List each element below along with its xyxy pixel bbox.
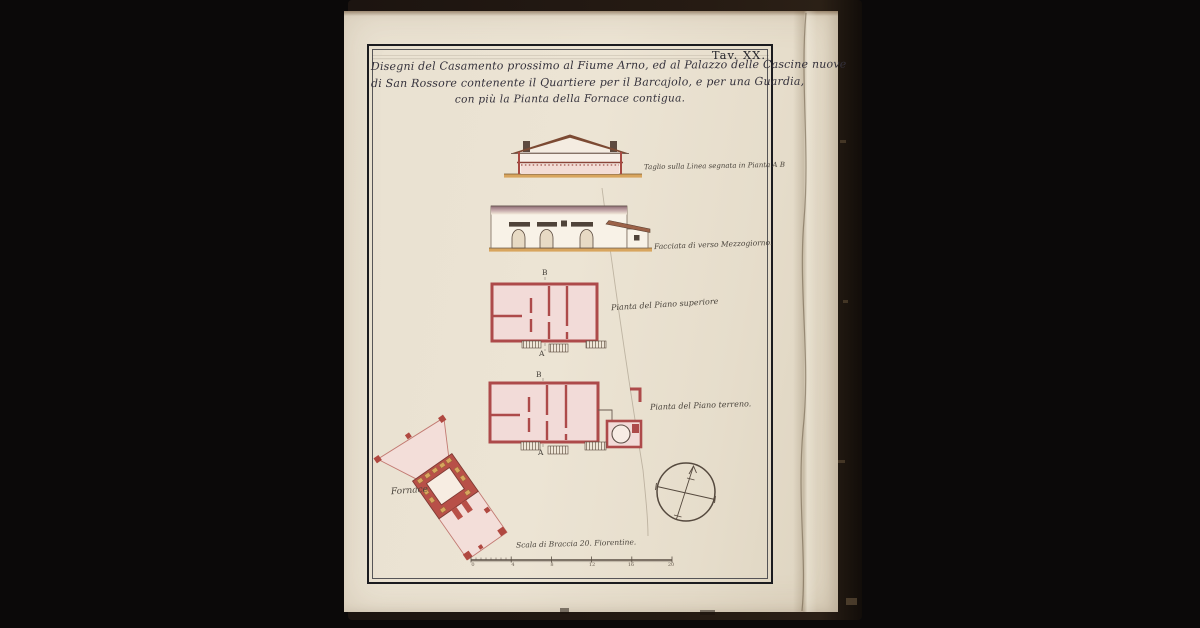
page-top-edge xyxy=(344,11,838,16)
scale-tick-label: 4 xyxy=(508,562,518,568)
upper-plan-marker-b: B xyxy=(542,268,548,277)
scale-tick-label: 12 xyxy=(587,562,597,568)
page-fold-shadow xyxy=(793,11,817,612)
ground-plan-marker-b: B xyxy=(536,370,542,379)
scale-tick-label: 16 xyxy=(626,562,636,568)
photographed-book-scan: Tav. XX. Disegni del Casamento prossimo … xyxy=(0,0,1200,628)
title-line-2: di San Rossore contenente il Quartiere p… xyxy=(371,73,769,92)
plate-frame-inner xyxy=(372,49,768,579)
title-line-3: con più la Pianta della Fornace contigua… xyxy=(371,90,769,109)
plate-title: Disegni del Casamento prossimo al Fiume … xyxy=(371,57,769,109)
scale-tick-label: 8 xyxy=(547,562,557,568)
scale-tick-label: 0 xyxy=(468,562,478,568)
ground-plan-marker-a: A xyxy=(538,448,543,457)
scale-tick-label: 20 xyxy=(666,562,676,568)
plate-frame xyxy=(367,44,773,584)
upper-plan-marker-a: A xyxy=(539,349,544,358)
